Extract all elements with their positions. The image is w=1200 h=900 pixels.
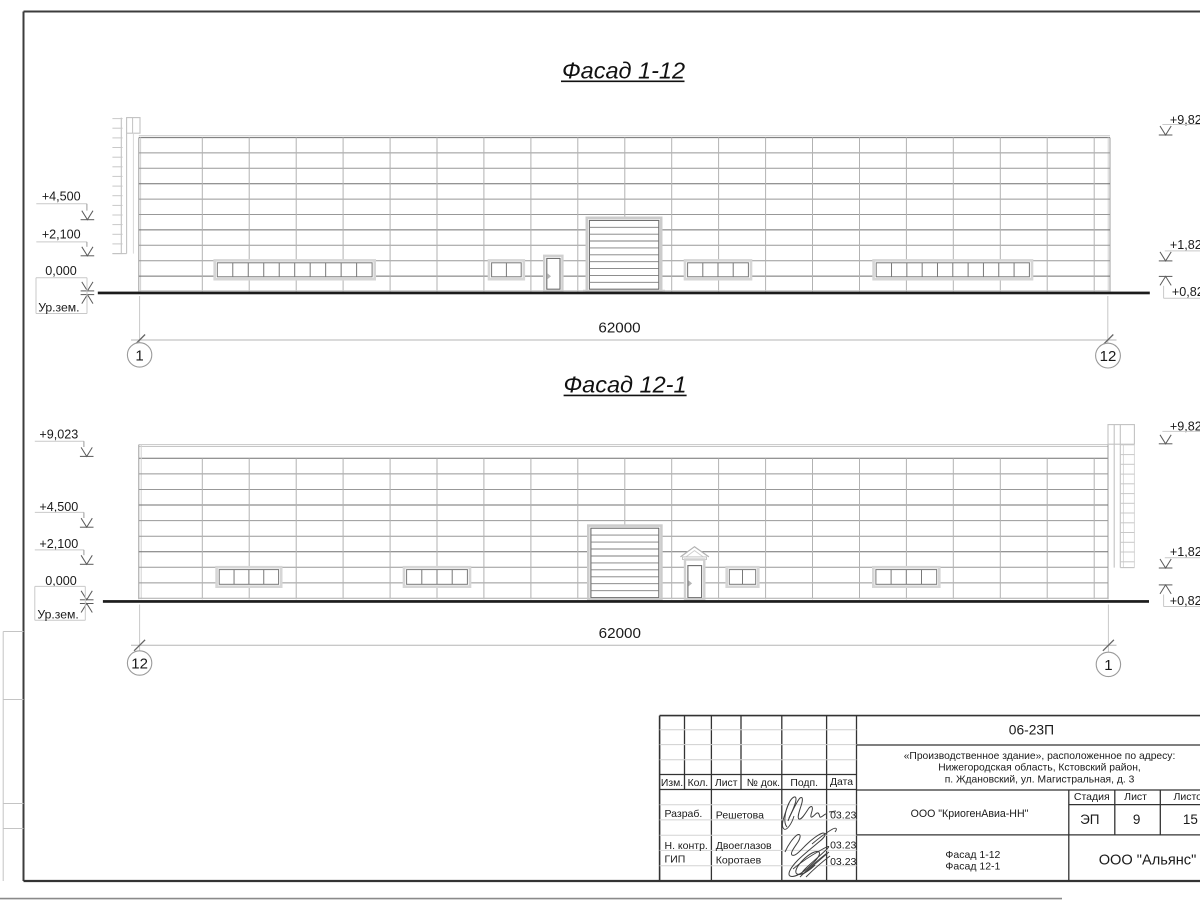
svg-text:Ур.зем.: Ур.зем. [37,607,78,621]
svg-text:+4,500: +4,500 [39,500,78,514]
svg-text:+0,825: +0,825 [1170,594,1200,608]
svg-text:+2,100: +2,100 [39,537,78,551]
svg-text:Ур.зем.: Ур.зем. [38,301,79,315]
svg-text:Решетова: Решетова [716,809,764,821]
svg-text:0,000: 0,000 [45,264,77,278]
svg-text:62000: 62000 [598,320,640,337]
svg-text:+0,825: +0,825 [1172,285,1200,299]
svg-text:Дата: Дата [830,777,853,788]
svg-text:1: 1 [135,347,143,364]
svg-text:Нижегородская область, Кстовск: Нижегородская область, Кстовский район, [938,762,1141,774]
svg-text:«Производственное здание», рас: «Производственное здание», расположенное… [904,751,1176,762]
svg-text:Кол.: Кол. [688,778,709,789]
svg-text:Лист: Лист [1124,791,1147,803]
svg-text:Двоеглазов: Двоеглазов [716,840,772,852]
svg-text:+1,825: +1,825 [1170,545,1200,559]
svg-text:+2,100: +2,100 [42,227,81,241]
svg-text:03.23: 03.23 [830,856,856,868]
svg-text:06-23П: 06-23П [1009,723,1054,738]
svg-text:ООО "Альянс": ООО "Альянс" [1099,853,1197,869]
svg-text:62000: 62000 [599,625,641,642]
svg-text:Подп.: Подп. [790,778,818,789]
svg-text:+9,023: +9,023 [39,428,78,442]
svg-text:9: 9 [1133,812,1141,827]
svg-text:Стадия: Стадия [1074,791,1110,803]
svg-text:12: 12 [1100,348,1117,365]
svg-text:Коротаев: Коротаев [716,855,762,867]
svg-text:12: 12 [131,655,148,672]
svg-text:Фасад 12-1: Фасад 12-1 [563,371,686,397]
svg-text:ЭП: ЭП [1080,812,1099,827]
svg-text:Фасад 1-12: Фасад 1-12 [562,58,685,84]
svg-text:№ док.: № док. [747,778,780,789]
svg-text:Лист: Лист [715,778,738,789]
svg-text:Изм.: Изм. [661,778,683,789]
svg-text:Фасад 12-1: Фасад 12-1 [945,861,1000,873]
svg-text:ГИП: ГИП [665,854,686,866]
svg-text:Листов: Листов [1173,791,1200,803]
svg-text:Н. контр.: Н. контр. [665,840,708,852]
svg-text:15: 15 [1183,812,1198,827]
svg-text:+1,825: +1,825 [1170,238,1200,252]
svg-text:1: 1 [1104,657,1112,674]
svg-text:Фасад 1-12: Фасад 1-12 [945,849,1000,861]
svg-text:п. Ждановский, ул. Магистральн: п. Ждановский, ул. Магистральная, д. 3 [945,774,1135,785]
svg-text:Разраб.: Разраб. [665,808,703,820]
svg-text:03.23: 03.23 [830,839,856,851]
svg-text:ООО "КриогенАвиа-НН": ООО "КриогенАвиа-НН" [911,808,1029,820]
svg-text:+4,500: +4,500 [42,190,81,204]
